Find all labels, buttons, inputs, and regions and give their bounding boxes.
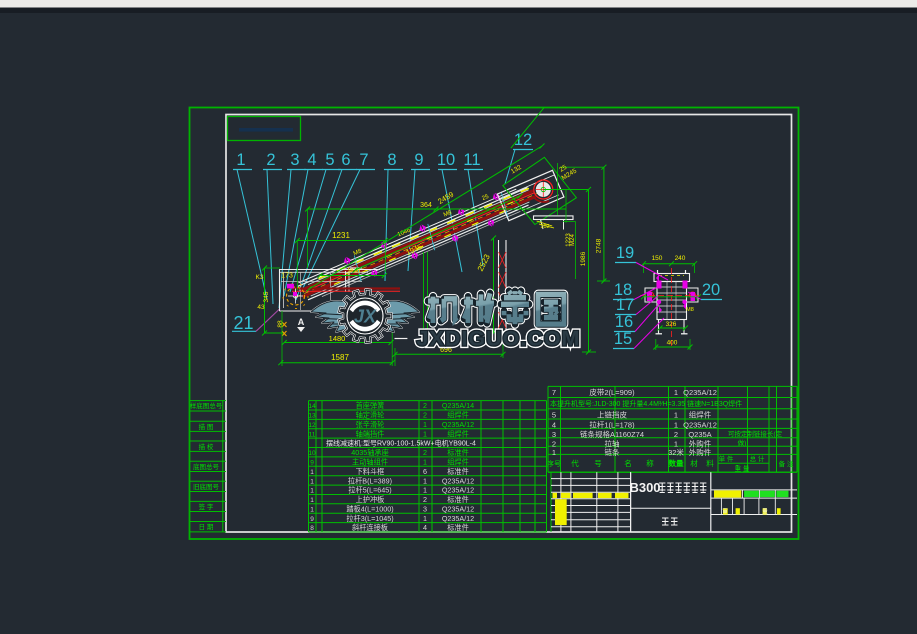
svg-text:8: 8 (310, 525, 314, 532)
svg-text:标准件: 标准件 (447, 467, 469, 476)
svg-text:备 注: 备 注 (779, 459, 794, 468)
svg-text:摆线减速机:型号RV90-100-1.5kW+电机YB90L: 摆线减速机:型号RV90-100-1.5kW+电机YB90L-4 (326, 439, 476, 448)
svg-text:1: 1 (423, 458, 427, 467)
svg-text:1: 1 (423, 420, 427, 429)
svg-text:1: 1 (310, 497, 314, 504)
svg-text:材: 材 (690, 458, 698, 468)
svg-text:1: 1 (423, 486, 427, 495)
svg-text:4: 4 (423, 523, 427, 532)
svg-text:下料斗框: 下料斗框 (356, 467, 385, 476)
svg-text:2: 2 (266, 151, 275, 169)
svg-text:5: 5 (325, 151, 334, 169)
svg-text:重 量: 重 量 (735, 465, 750, 473)
svg-text:Q235A/12: Q235A/12 (683, 388, 717, 397)
svg-text:链条: 链条 (605, 447, 620, 457)
svg-text:Q235A/12: Q235A/12 (442, 514, 474, 523)
svg-text:1587: 1587 (331, 353, 349, 362)
svg-text:9: 9 (310, 460, 314, 467)
svg-text:Q235A/12: Q235A/12 (442, 486, 474, 495)
svg-text:11: 11 (309, 431, 316, 438)
svg-text:单 件: 单 件 (719, 454, 734, 463)
svg-text:轴定滑轮: 轴定滑轮 (356, 411, 385, 420)
svg-text:10: 10 (308, 450, 316, 457)
svg-text:做): 做) (738, 438, 747, 447)
svg-text:15: 15 (614, 330, 632, 348)
svg-text:400: 400 (667, 340, 678, 347)
svg-text:称: 称 (646, 458, 654, 468)
svg-text:1986: 1986 (580, 251, 587, 266)
svg-text:主动轴组件: 主动轴组件 (352, 458, 388, 467)
svg-text:4035轴承座: 4035轴承座 (351, 448, 389, 457)
svg-text:样底图总号: 样底图总号 (190, 401, 223, 410)
svg-text:组焊件: 组焊件 (447, 429, 469, 438)
svg-text:Q235A/12: Q235A/12 (683, 421, 717, 430)
svg-text:Q235A/12: Q235A/12 (442, 504, 474, 513)
svg-text:1223: 1223 (566, 233, 572, 247)
svg-text:1: 1 (674, 388, 678, 397)
svg-text:7: 7 (552, 388, 556, 397)
svg-text:364: 364 (420, 202, 432, 209)
svg-text:1480: 1480 (329, 334, 346, 343)
svg-text:K3: K3 (256, 274, 264, 281)
svg-text:1: 1 (423, 429, 427, 438)
svg-text:2: 2 (423, 495, 427, 504)
svg-text:轴端挡件: 轴端挡件 (356, 429, 385, 438)
svg-text:标准件: 标准件 (447, 448, 469, 457)
svg-text:量: 量 (762, 508, 768, 515)
svg-text:旧底图号: 旧底图号 (193, 482, 220, 491)
svg-text:Q235A/14: Q235A/14 (442, 401, 474, 410)
svg-text:描 图: 描 图 (199, 422, 214, 431)
svg-text:3: 3 (552, 430, 556, 439)
svg-text:踏板4(L=1000): 踏板4(L=1000) (346, 504, 393, 513)
svg-text:可按定制链接长(定: 可按定制链接长(定 (728, 429, 783, 438)
svg-text:2: 2 (674, 430, 678, 439)
svg-text:号: 号 (594, 459, 602, 468)
svg-text:4: 4 (552, 421, 556, 430)
svg-text:日 期: 日 期 (199, 523, 214, 531)
svg-text:102: 102 (540, 224, 549, 230)
svg-text:料: 料 (706, 458, 714, 468)
svg-text:总 计: 总 计 (750, 454, 765, 463)
svg-text:1: 1 (674, 410, 678, 419)
svg-text:拉轴: 拉轴 (605, 438, 620, 448)
svg-text:上护冲板: 上护冲板 (356, 495, 385, 504)
svg-text:345: 345 (263, 291, 270, 302)
svg-text:6: 6 (341, 151, 350, 169)
svg-text:3: 3 (423, 504, 427, 513)
svg-text:拉杆3(L=1045): 拉杆3(L=1045) (346, 514, 393, 523)
svg-text:M8: M8 (686, 307, 694, 313)
svg-text:1231: 1231 (332, 231, 350, 240)
svg-text:1: 1 (310, 506, 314, 513)
svg-text:1: 1 (552, 448, 556, 457)
svg-text:皮带2(L=909): 皮带2(L=909) (589, 387, 635, 397)
svg-text:拉杆B(L=389): 拉杆B(L=389) (348, 476, 392, 485)
svg-text:9: 9 (310, 516, 314, 523)
svg-text:组焊件: 组焊件 (447, 458, 469, 467)
svg-text:拉杆5(L=645): 拉杆5(L=645) (348, 486, 391, 495)
svg-text:名: 名 (624, 458, 632, 468)
svg-text:43: 43 (257, 304, 265, 311)
svg-text:B300: B300 (629, 480, 660, 495)
svg-text:拉杆1(L=178): 拉杆1(L=178) (589, 420, 635, 430)
svg-text:外购件: 外购件 (689, 447, 712, 457)
svg-text:1: 1 (236, 151, 245, 169)
svg-text:Q235A: Q235A (688, 430, 711, 439)
svg-text:标准件: 标准件 (447, 495, 469, 504)
svg-text:88: 88 (277, 320, 284, 328)
svg-text:JX: JX (354, 307, 377, 327)
svg-text:32米: 32米 (668, 447, 684, 457)
svg-text:13: 13 (308, 413, 316, 420)
svg-text:12: 12 (308, 422, 316, 429)
svg-text:10: 10 (437, 151, 455, 169)
svg-text:173: 173 (281, 273, 293, 280)
svg-text:1: 1 (310, 469, 314, 476)
svg-text:2: 2 (423, 401, 427, 410)
svg-text:16: 16 (615, 313, 633, 331)
svg-text:上链挡皮: 上链挡皮 (597, 409, 627, 419)
svg-text:2: 2 (423, 448, 427, 457)
svg-text:本提升机型号:JLD-300 提升量4.4M³∕H=3.3: 本提升机型号:JLD-300 提升量4.4M³∕H=3.35 链速N=1B3Q焊… (550, 399, 742, 408)
svg-text:17: 17 (616, 296, 634, 314)
svg-text:组焊件: 组焊件 (447, 411, 469, 420)
svg-text:外购件: 外购件 (689, 438, 712, 448)
svg-text:1: 1 (310, 488, 314, 495)
svg-text:签 字: 签 字 (199, 502, 214, 511)
svg-text:3: 3 (290, 151, 299, 169)
svg-text:描 校: 描 校 (199, 442, 214, 451)
svg-text:6: 6 (423, 467, 427, 476)
svg-text:1: 1 (310, 478, 314, 485)
svg-text:4: 4 (307, 151, 316, 169)
svg-text:2748: 2748 (596, 238, 603, 253)
svg-text:1: 1 (423, 514, 427, 523)
svg-text:2: 2 (423, 411, 427, 420)
svg-text:JXDIGUO.COM: JXDIGUO.COM (417, 327, 581, 351)
svg-text:9: 9 (414, 151, 423, 169)
svg-text:326: 326 (666, 321, 677, 328)
svg-text:5: 5 (552, 410, 556, 419)
svg-text:斜杆连接板: 斜杆连接板 (352, 523, 388, 532)
svg-text:底图总号: 底图总号 (193, 462, 220, 471)
svg-text:19: 19 (616, 244, 634, 262)
svg-text:20: 20 (702, 281, 720, 299)
svg-text:审: 审 (722, 507, 728, 515)
svg-text:首座弹簧: 首座弹簧 (356, 401, 385, 410)
svg-text:Q235A/12: Q235A/12 (442, 420, 474, 429)
svg-text:11: 11 (463, 151, 480, 169)
svg-text:组焊件: 组焊件 (689, 409, 712, 419)
svg-text:数量: 数量 (669, 458, 684, 468)
svg-text:代: 代 (571, 458, 579, 468)
svg-text:Q235A/12: Q235A/12 (442, 476, 474, 485)
svg-text:14: 14 (308, 403, 316, 410)
svg-text:8: 8 (387, 151, 396, 169)
svg-text:240: 240 (675, 255, 686, 262)
svg-text:150: 150 (652, 255, 663, 262)
svg-text:1: 1 (423, 476, 427, 485)
svg-text:21: 21 (233, 313, 253, 333)
svg-text:链条规格A1160Z74: 链条规格A1160Z74 (580, 429, 644, 439)
svg-text:张辛滑轮: 张辛滑轮 (356, 420, 385, 429)
svg-text:序号: 序号 (547, 459, 561, 468)
svg-text:标准件: 标准件 (447, 523, 469, 532)
svg-text:A: A (298, 317, 305, 327)
svg-text:1: 1 (674, 421, 678, 430)
svg-text:908: 908 (348, 266, 361, 275)
svg-text:7: 7 (359, 151, 368, 169)
